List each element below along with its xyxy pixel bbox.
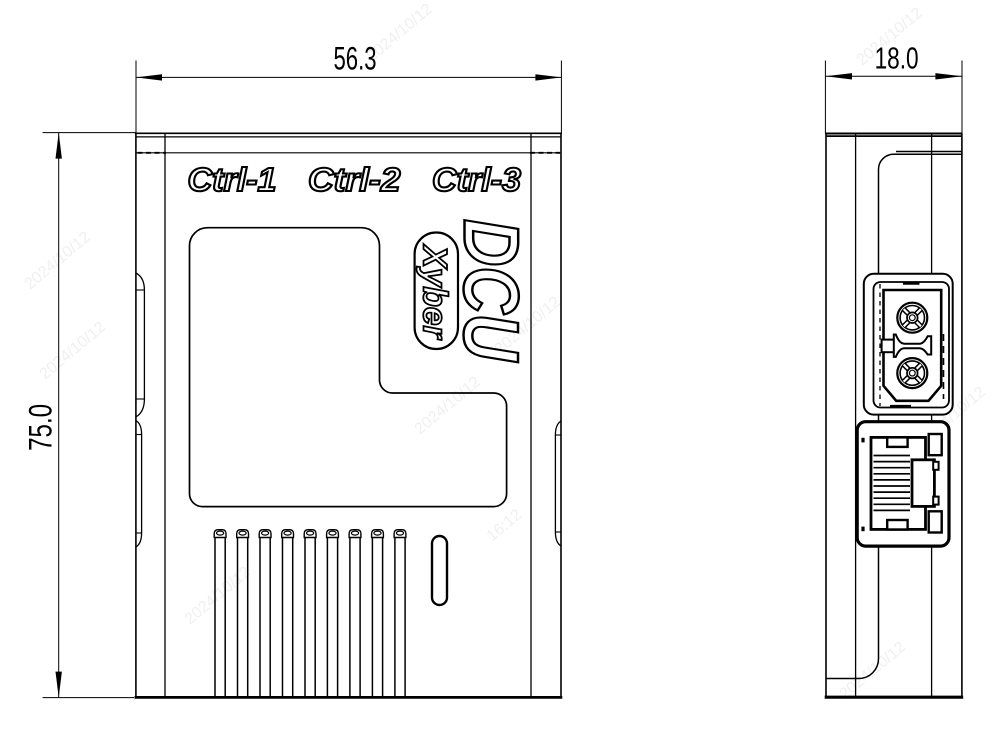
svg-text:Ctrl-3: Ctrl-3: [432, 161, 521, 198]
svg-text:Ctrl-1: Ctrl-1: [188, 161, 277, 198]
svg-text:DCU: DCU: [448, 219, 536, 362]
svg-text:Xyber: Xyber: [416, 244, 454, 341]
svg-text:75.0: 75.0: [23, 404, 59, 451]
svg-text:56.3: 56.3: [334, 41, 377, 77]
svg-text:Ctrl-2: Ctrl-2: [308, 161, 401, 198]
svg-text:18.0: 18.0: [875, 41, 919, 76]
